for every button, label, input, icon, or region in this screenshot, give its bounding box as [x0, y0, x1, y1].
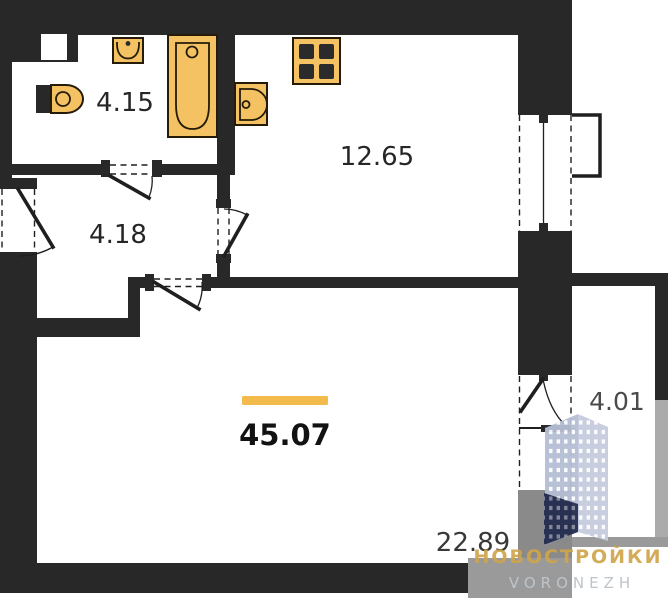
wall-niche — [40, 33, 68, 61]
wall-segment — [128, 277, 140, 320]
wall-segment — [0, 252, 37, 593]
wall-segment — [211, 277, 518, 288]
wall-segment — [518, 231, 572, 375]
stove-burner — [319, 44, 334, 59]
door-jamb — [101, 160, 110, 177]
wall-segment — [162, 164, 235, 175]
total-area-label: 45.07 — [239, 418, 331, 452]
toilet-icon — [36, 85, 83, 113]
wall-segment — [68, 33, 78, 62]
balcony-area-label: 4.01 — [589, 387, 645, 416]
wall-segment — [0, 563, 468, 593]
watermark-city: VORONEZH — [509, 574, 635, 592]
bathtub-icon — [168, 35, 217, 137]
balcony-parapet — [655, 400, 668, 547]
bathroom-area-label: 4.15 — [96, 88, 154, 118]
window-cap — [539, 114, 548, 123]
wall-segment — [572, 273, 668, 286]
wall-segment — [33, 318, 140, 337]
stove-burner — [299, 44, 314, 59]
stove-burner — [319, 64, 334, 79]
door-jamb — [202, 274, 211, 291]
bath-sink-icon — [113, 38, 143, 63]
sink-faucet — [126, 41, 131, 46]
stove-burner — [299, 64, 314, 79]
kitchen-area-label: 12.65 — [340, 142, 414, 172]
floor-plan-image: 4.15 12.65 4.18 45.07 22.89 4.01 НОВОСТР… — [0, 0, 669, 600]
wall-segment — [0, 164, 102, 175]
building-windows — [578, 414, 608, 541]
toilet-tank — [36, 85, 51, 113]
floor-plan-svg: 4.15 12.65 4.18 45.07 22.89 4.01 НОВОСТР… — [0, 0, 669, 600]
stove-icon — [293, 38, 340, 84]
window-cap — [539, 223, 548, 232]
wall-segment — [518, 0, 572, 115]
watermark-brand: НОВОСТРОЙКИ — [473, 545, 662, 568]
watermark-building-icon — [544, 414, 608, 545]
kitchen-sink-icon — [235, 83, 267, 125]
wall-segment — [217, 35, 235, 164]
wall-segment — [217, 175, 230, 201]
wall-segment — [655, 286, 668, 400]
hallway-area-label: 4.18 — [89, 220, 147, 250]
door-jamb — [216, 199, 231, 208]
door-jamb — [152, 160, 162, 177]
wall-segment — [0, 0, 572, 35]
wall-segment — [0, 0, 12, 178]
total-area-accent-bar — [242, 396, 328, 405]
